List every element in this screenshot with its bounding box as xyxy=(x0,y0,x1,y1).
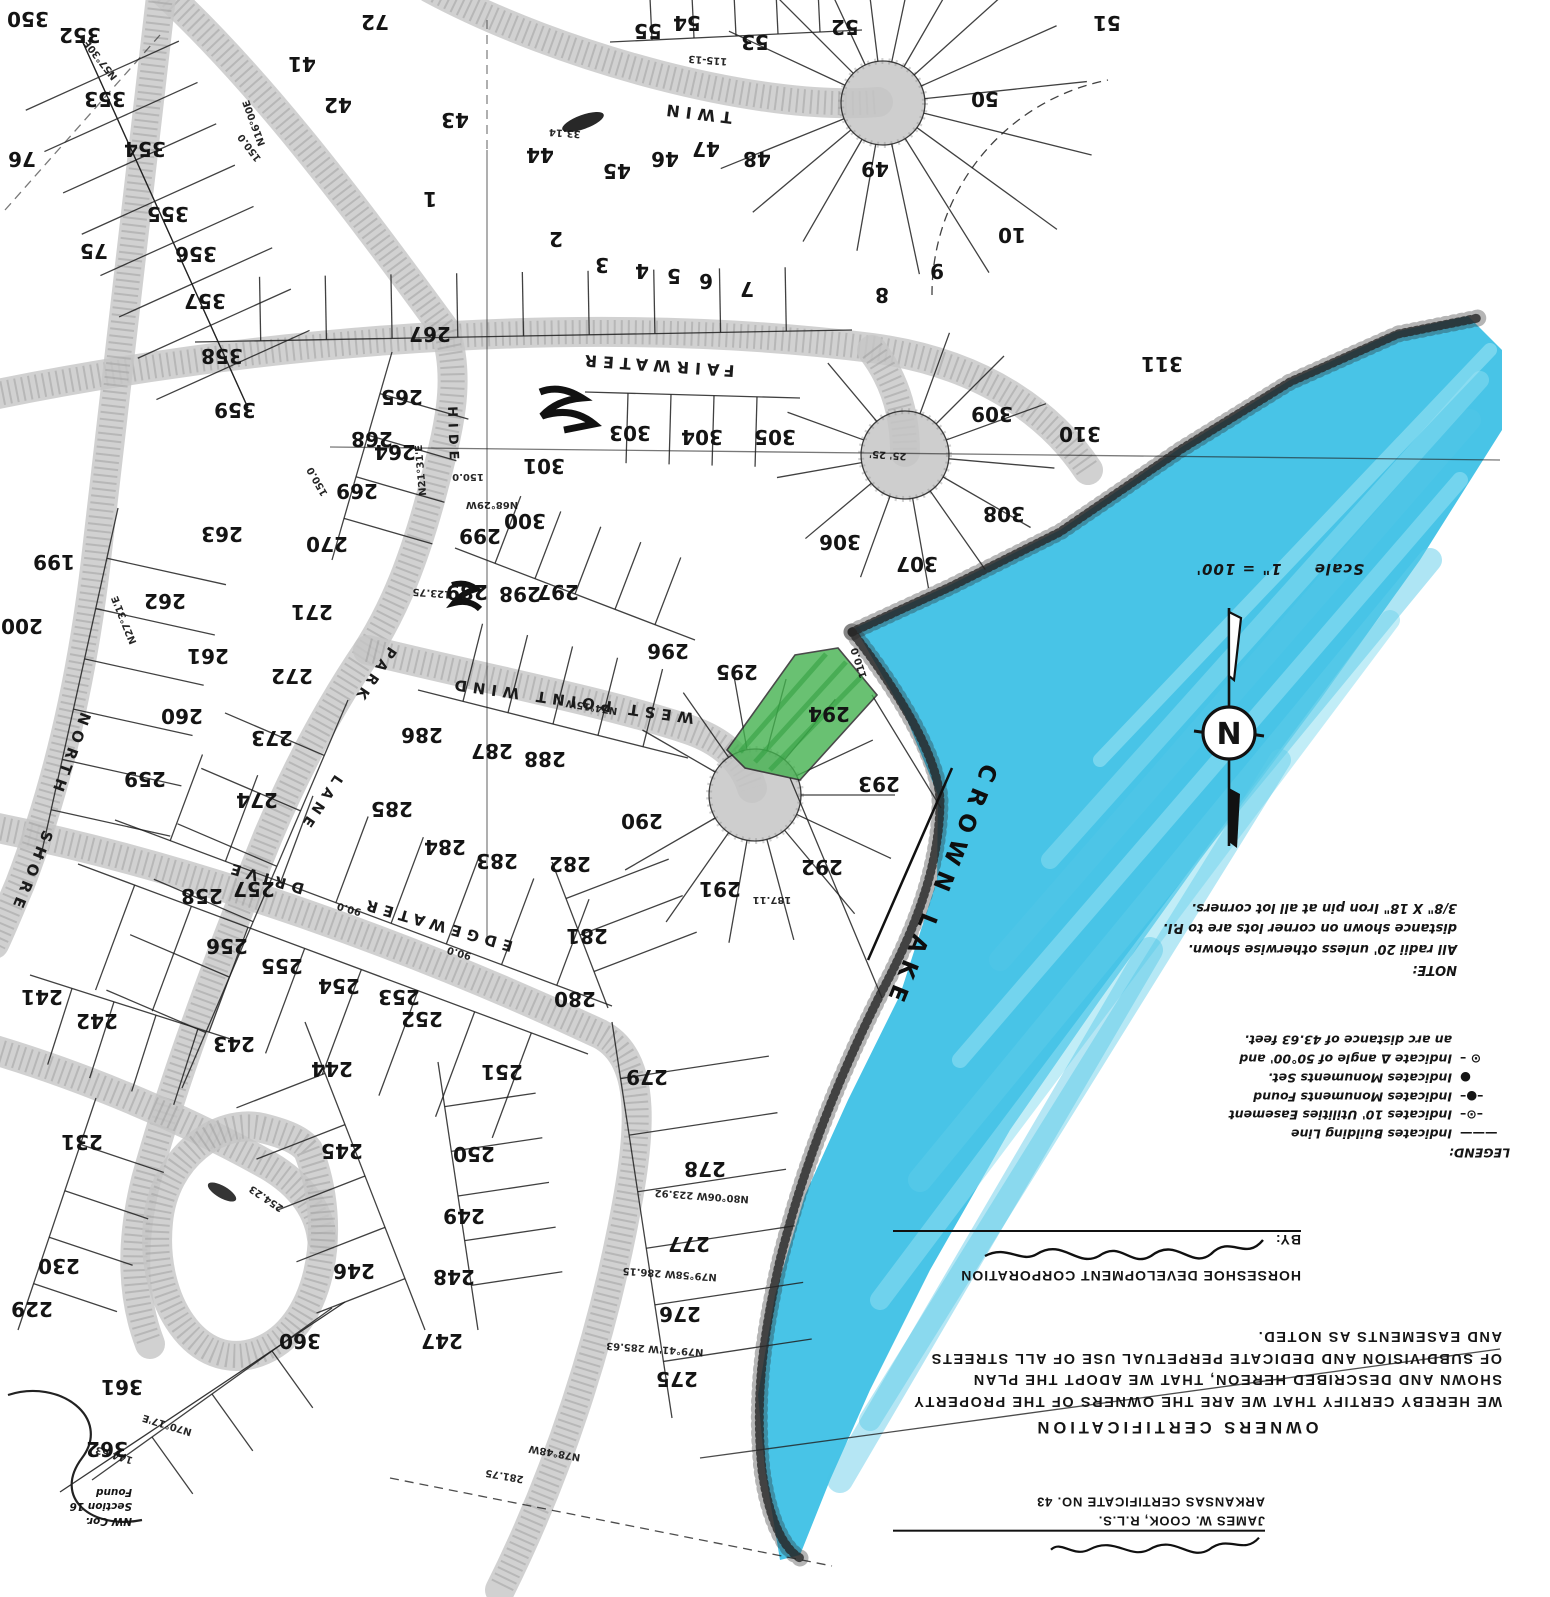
section-corner-note: NW Cor. Section 16 Found xyxy=(12,1484,132,1528)
monuments-set-symbol: ● xyxy=(1460,1068,1510,1087)
lot-number-282: 282 xyxy=(549,852,591,876)
lot-number-230: 230 xyxy=(38,1254,80,1278)
lot-number-274: 274 xyxy=(236,788,278,812)
lot-number-43: 43 xyxy=(441,108,469,132)
lot-number-298: 298 xyxy=(499,582,541,606)
lot-line xyxy=(96,885,135,990)
lot-line xyxy=(734,0,736,36)
lot-line xyxy=(785,267,786,331)
lot-number-245: 245 xyxy=(321,1139,363,1163)
lot-number-310: 310 xyxy=(1059,422,1101,446)
note-title: NOTE: xyxy=(985,958,1457,979)
lot-number-7: 7 xyxy=(740,277,754,301)
lot-number-350: 350 xyxy=(7,7,49,31)
lot-number-263: 263 xyxy=(201,522,243,546)
lot-number-277: 277 xyxy=(668,1232,710,1256)
bearing-label: 115-13 xyxy=(688,53,728,67)
lot-number-285: 285 xyxy=(371,797,413,821)
legend-item: ● Indicates Monuments Set. xyxy=(1040,1068,1510,1087)
scale-word: Scale xyxy=(1314,560,1364,578)
lot-number-6: 6 xyxy=(699,269,713,293)
lot-number-295: 295 xyxy=(716,660,758,684)
lot-line xyxy=(803,139,862,241)
lot-row-line xyxy=(585,392,800,398)
lot-line xyxy=(44,119,117,152)
lot-line xyxy=(925,82,1087,99)
lot-number-286: 286 xyxy=(401,723,443,747)
lot-line xyxy=(492,1033,531,1138)
lot-number-46: 46 xyxy=(651,147,679,171)
utilities-easement-symbol: –⊙– xyxy=(1460,1105,1510,1124)
lot-number-251: 251 xyxy=(481,1060,523,1084)
lot-number-311: 311 xyxy=(1141,352,1183,376)
lot-line xyxy=(594,932,697,971)
lot-number-249: 249 xyxy=(443,1204,485,1228)
lot-line xyxy=(818,0,820,32)
lot-line xyxy=(260,277,261,341)
lot-number-360: 360 xyxy=(279,1329,321,1353)
certification-line: OF SUBDIVISION AND DEDICATE PERPETUAL US… xyxy=(850,1346,1502,1368)
bearing-label: 150.0 xyxy=(452,471,484,482)
lot-number-246: 246 xyxy=(333,1259,375,1283)
delta-angle-symbol: ⊙ – xyxy=(1460,1049,1510,1068)
lot-arc xyxy=(932,80,1108,295)
monuments-found-symbol: –●– xyxy=(1460,1086,1510,1105)
lot-line xyxy=(904,0,967,67)
lot-number-288: 288 xyxy=(524,747,566,771)
lot-line xyxy=(861,496,890,577)
legend-continuation: an arc distance of 43.63 feet. xyxy=(1040,1030,1510,1049)
lot-number-5: 5 xyxy=(667,264,681,288)
legend-item: –⊙– Indicates 10' Utilities Easement xyxy=(1040,1105,1510,1124)
lot-number-3: 3 xyxy=(595,253,609,277)
lot-number-8: 8 xyxy=(875,283,889,307)
lot-number-292: 292 xyxy=(801,855,843,879)
lot-line xyxy=(949,459,1055,468)
surveyor-certificate: ARKANSAS CERTIFICATE NO. 43 xyxy=(893,1492,1265,1511)
note-block: NOTE: All radii 20' unless otherwise sho… xyxy=(985,896,1457,979)
lot-number-49: 49 xyxy=(861,157,889,181)
lot-line xyxy=(272,1351,313,1408)
legend-item: ⊙ – Indicate Δ angle of 50°00' and xyxy=(1040,1049,1510,1068)
lot-number-353: 353 xyxy=(84,87,126,111)
lot-number-55: 55 xyxy=(634,19,662,43)
bearing-label: N79°41'W 285.63 xyxy=(606,1340,704,1358)
lot-number-250: 250 xyxy=(453,1142,495,1166)
by-label: BY: xyxy=(1275,1232,1301,1248)
legend-item: ——— Indicates Building Line xyxy=(1040,1124,1510,1143)
lot-number-76: 76 xyxy=(8,147,36,171)
company-name: HORSESHOE DEVELOPMENT CORPORATION xyxy=(893,1268,1301,1284)
lot-line xyxy=(892,144,920,274)
lot-number-267: 267 xyxy=(409,322,451,346)
lot-number-44: 44 xyxy=(526,143,554,167)
lot-line xyxy=(471,1272,562,1286)
surveyor-signature-line xyxy=(893,1530,1265,1558)
lot-number-259: 259 xyxy=(124,767,166,791)
lot-number-278: 278 xyxy=(684,1157,726,1181)
lot-number-272: 272 xyxy=(271,664,313,688)
certification-line: WE HEREBY CERTIFY THAT WE ARE THE OWNERS… xyxy=(850,1389,1502,1411)
lot-number-262: 262 xyxy=(144,589,186,613)
lot-number-359: 359 xyxy=(214,398,256,422)
north-letter: N xyxy=(1216,717,1241,752)
lot-number-281: 281 xyxy=(566,924,608,948)
lot-line xyxy=(615,542,641,609)
lot-number-229: 229 xyxy=(11,1297,53,1321)
lot-number-299: 299 xyxy=(459,524,501,548)
legend-block: LEGEND: ——— Indicates Building Line –⊙– … xyxy=(1040,1030,1510,1161)
lot-number-241: 241 xyxy=(21,985,63,1009)
scale-label: Scale 1" = 100' xyxy=(1108,560,1364,578)
certification-line: AND EASEMENTS AS NOTED. xyxy=(850,1324,1502,1346)
lot-number-300: 300 xyxy=(504,509,546,533)
lot-number-307: 307 xyxy=(896,552,938,576)
signature-row: BY: xyxy=(893,1230,1301,1266)
lot-number-355: 355 xyxy=(147,202,189,226)
lot-number-357: 357 xyxy=(184,289,226,313)
lot-number-304: 304 xyxy=(681,425,723,449)
lot-number-51: 51 xyxy=(1093,11,1121,35)
lot-number-297: 297 xyxy=(537,580,579,604)
note-line: All radii 20' unless otherwise shown. xyxy=(985,938,1457,959)
lot-line xyxy=(85,659,204,685)
lot-number-280: 280 xyxy=(554,987,596,1011)
lot-line xyxy=(797,814,891,858)
lot-line xyxy=(788,412,864,440)
signature-script xyxy=(969,1232,1269,1266)
lot-line xyxy=(212,1394,253,1451)
bearing-label: 187.11 xyxy=(753,894,792,905)
lot-number-47: 47 xyxy=(692,137,720,161)
lot-number-287: 287 xyxy=(471,739,513,763)
lot-number-253: 253 xyxy=(378,985,420,1009)
bearing-label: 150.0 xyxy=(305,465,330,498)
bearing-label: N79°58W 286.15 xyxy=(622,1265,717,1283)
lot-number-301: 301 xyxy=(523,454,565,478)
lot-line xyxy=(914,0,1015,75)
twin-road xyxy=(430,0,878,103)
lot-number-200: 200 xyxy=(1,614,43,638)
lot-row-line xyxy=(78,864,588,1054)
lot-number-254: 254 xyxy=(318,974,360,998)
lot-number-269: 269 xyxy=(336,479,378,503)
lot-number-75: 75 xyxy=(80,239,108,263)
lot-number-2: 2 xyxy=(549,227,563,251)
lot-number-52: 52 xyxy=(831,15,859,39)
lot-number-361: 361 xyxy=(101,1375,143,1399)
lot-line xyxy=(767,839,794,939)
surveyor-block: JAMES W. COOK, R.L.S. ARKANSAS CERTIFICA… xyxy=(893,1492,1265,1558)
owners-certification-block: OWNERS CERTIFICATION WE HEREBY CERTIFY T… xyxy=(850,1324,1502,1439)
lot-line xyxy=(777,463,862,478)
lot-number-4: 4 xyxy=(635,259,649,283)
lot-number-291: 291 xyxy=(699,877,741,901)
bearing-label: N80°06W 223.92 xyxy=(654,1187,749,1205)
lot-number-303: 303 xyxy=(609,421,651,445)
lot-number-242: 242 xyxy=(76,1009,118,1033)
lot-line xyxy=(917,128,1057,230)
lot-number-261: 261 xyxy=(187,644,229,668)
lot-number-45: 45 xyxy=(603,159,631,183)
lot-number-289: 289 xyxy=(446,580,488,604)
lot-number-308: 308 xyxy=(983,502,1025,526)
lot-number-231: 231 xyxy=(61,1130,103,1154)
signature-script xyxy=(1045,1532,1265,1558)
lot-line xyxy=(325,276,326,340)
lot-line xyxy=(655,557,681,624)
lot-number-1: 1 xyxy=(423,187,437,211)
lot-number-53: 53 xyxy=(741,30,769,54)
lot-number-276: 276 xyxy=(659,1302,701,1326)
lot-number-256: 256 xyxy=(206,934,248,958)
legend-item: –●– Indicates Monuments Found xyxy=(1040,1086,1510,1105)
lot-number-294: 294 xyxy=(808,702,850,726)
lot-number-42: 42 xyxy=(324,93,352,117)
lot-number-41: 41 xyxy=(288,52,316,76)
lot-number-354: 354 xyxy=(124,137,166,161)
legend-title: LEGEND: xyxy=(1040,1143,1510,1162)
bearing-label: N27°31'E xyxy=(110,594,139,646)
ink-mark xyxy=(205,1179,239,1205)
lot-line xyxy=(336,817,368,903)
lot-number-260: 260 xyxy=(161,704,203,728)
lot-number-273: 273 xyxy=(251,726,293,750)
lot-number-244: 244 xyxy=(311,1057,353,1081)
lot-line xyxy=(155,165,235,201)
lot-line xyxy=(721,119,844,169)
lot-number-10: 10 xyxy=(998,223,1026,247)
lot-line xyxy=(465,1227,556,1241)
lot-number-199: 199 xyxy=(33,550,75,574)
lot-line xyxy=(776,0,778,34)
lot-line xyxy=(924,113,1092,155)
lot-number-50: 50 xyxy=(971,87,999,111)
lot-number-270: 270 xyxy=(306,532,348,556)
bearing-label: 123.75 xyxy=(412,586,451,600)
lot-number-268: 268 xyxy=(351,427,393,451)
certification-title: OWNERS CERTIFICATION xyxy=(850,1414,1502,1439)
street-label-hide: HIDE xyxy=(444,406,461,466)
lot-line xyxy=(864,0,878,61)
lot-number-9: 9 xyxy=(930,259,944,283)
scale-value: 1" = 100' xyxy=(1195,560,1281,578)
lot-line xyxy=(152,1437,193,1494)
bearing-label: 281.75 xyxy=(485,1467,525,1485)
lot-number-275: 275 xyxy=(656,1367,698,1391)
lot-line xyxy=(905,139,989,273)
company-signature-block: HORSESHOE DEVELOPMENT CORPORATION BY: xyxy=(893,1230,1301,1284)
lot-number-243: 243 xyxy=(213,1032,255,1056)
lot-number-247: 247 xyxy=(421,1329,463,1353)
lot-number-296: 296 xyxy=(647,639,689,663)
certification-line: SHOWN AND DESCRIBED HEREON, THAT WE ADOP… xyxy=(850,1368,1502,1390)
lot-number-293: 293 xyxy=(858,772,900,796)
plat-map-scan: CROWN LAKE 35035235335435535635735835976… xyxy=(0,0,1550,1597)
surveyor-name: JAMES W. COOK, R.L.S. xyxy=(893,1511,1265,1530)
lot-line xyxy=(921,26,1056,86)
lot-number-271: 271 xyxy=(291,600,333,624)
lot-line xyxy=(458,1182,549,1196)
note-line: distance shown on corner lots are to P.I… xyxy=(985,917,1457,938)
survey-line xyxy=(790,778,882,998)
building-line-symbol: ——— xyxy=(1460,1124,1510,1143)
lot-number-258: 258 xyxy=(181,884,223,908)
lot-number-255: 255 xyxy=(261,954,303,978)
ink-mark xyxy=(540,389,594,430)
street-label-fairwater: FAIRWATER xyxy=(578,351,735,381)
lot-number-284: 284 xyxy=(424,835,466,859)
lot-number-252: 252 xyxy=(401,1007,443,1031)
bearing-label: 33.14 xyxy=(549,126,581,139)
note-line: 3/8" X 18" Iron pin at all lot corners. xyxy=(985,896,1457,917)
lot-line xyxy=(445,1093,536,1107)
lot-number-279: 279 xyxy=(626,1065,668,1089)
lot-line xyxy=(669,394,671,464)
lot-number-358: 358 xyxy=(201,344,243,368)
lot-number-306: 306 xyxy=(819,530,861,554)
lot-number-290: 290 xyxy=(621,809,663,833)
lot-number-283: 283 xyxy=(476,849,518,873)
lot-number-48: 48 xyxy=(743,147,771,171)
lot-number-309: 309 xyxy=(971,402,1013,426)
lot-number-248: 248 xyxy=(433,1265,475,1289)
lot-number-54: 54 xyxy=(673,11,701,35)
lot-number-356: 356 xyxy=(175,242,217,266)
lot-number-305: 305 xyxy=(754,425,796,449)
bearing-label: N68°29W xyxy=(466,499,518,510)
lot-number-72: 72 xyxy=(361,10,389,34)
lot-line xyxy=(107,558,226,584)
lot-line xyxy=(132,1015,156,1091)
lot-number-265: 265 xyxy=(381,385,423,409)
